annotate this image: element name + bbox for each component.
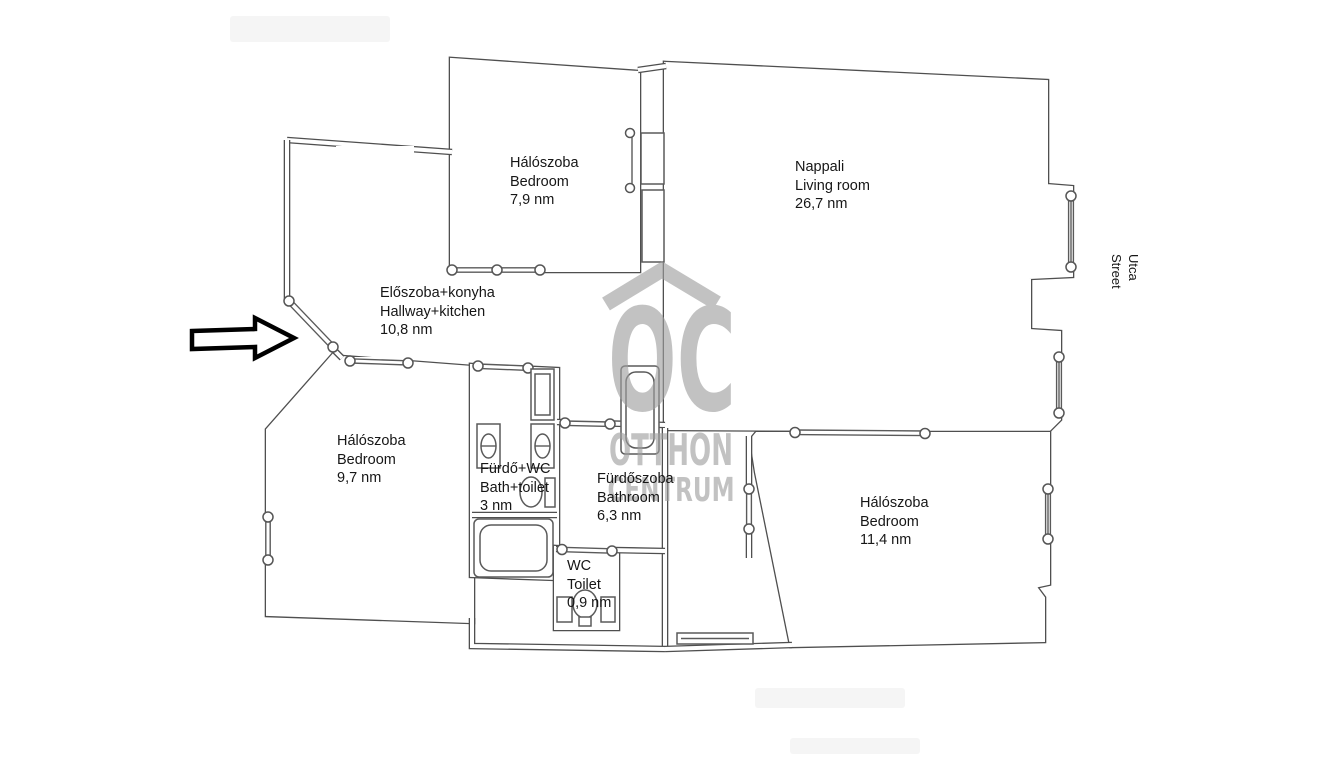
room-area: 7,9 nm xyxy=(510,191,579,210)
street-label-en: Street xyxy=(1108,254,1125,316)
room-name-en: Bedroom xyxy=(337,451,406,470)
bathtub-small xyxy=(474,519,553,577)
room-name-en: Living room xyxy=(795,177,870,196)
room-area: 26,7 nm xyxy=(795,195,870,214)
living-bedroom-opening xyxy=(790,428,930,439)
shaft-closets xyxy=(641,133,664,262)
room-label-bedroom-right: Hálószoba Bedroom 11,4 nm xyxy=(860,494,929,550)
entrance-door xyxy=(284,296,338,352)
room-name-en: Toilet xyxy=(567,576,611,595)
vestibule-door xyxy=(744,484,754,534)
room-name-en: Bedroom xyxy=(510,173,579,192)
street-label: Utca Street xyxy=(1104,254,1142,316)
room-name-hu: Hálószoba xyxy=(860,494,929,513)
room-name-hu: Előszoba+konyha xyxy=(380,284,495,303)
room-name-en: Bath+toilet xyxy=(480,479,551,498)
street-label-hu: Utca xyxy=(1125,254,1142,316)
bedroom-right-window xyxy=(1043,484,1053,544)
room-name-en: Bathroom xyxy=(597,489,674,508)
room-label-bath-toilet: Fürdő+WC Bath+toilet 3 nm xyxy=(480,460,551,516)
room-label-bathroom: Fürdőszoba Bathroom 6,3 nm xyxy=(597,470,674,526)
room-area: 0,9 nm xyxy=(567,594,611,613)
room-label-wc: WC Toilet 0,9 nm xyxy=(567,557,611,613)
floorplan-drawing: .wo{fill:none;stroke:#4f4f4f;stroke-widt… xyxy=(0,0,1344,768)
scan-erasure xyxy=(336,146,414,156)
room-name-hu: WC xyxy=(567,557,611,576)
room-label-hallway-kitchen: Előszoba+konyha Hallway+kitchen 10,8 nm xyxy=(380,284,495,340)
room-label-bedroom-top: Hálószoba Bedroom 7,9 nm xyxy=(510,154,579,210)
watermark-line1: OTTHON xyxy=(609,425,733,476)
scan-smudge xyxy=(755,688,905,708)
room-area: 10,8 nm xyxy=(380,321,495,340)
watermark-initials: OC xyxy=(608,279,736,444)
room-name-en: Hallway+kitchen xyxy=(380,303,495,322)
bedroom-top-window xyxy=(447,265,545,275)
room-area: 9,7 nm xyxy=(337,469,406,488)
room-label-living-room: Nappali Living room 26,7 nm xyxy=(795,158,870,214)
room-area: 11,4 nm xyxy=(860,531,929,550)
room-name-hu: Hálószoba xyxy=(510,154,579,173)
room-name-hu: Fürdő+WC xyxy=(480,460,551,479)
scan-smudge xyxy=(790,738,920,754)
room-label-bedroom-left: Hálószoba Bedroom 9,7 nm xyxy=(337,432,406,488)
room-area: 3 nm xyxy=(480,497,551,516)
scan-smudge xyxy=(230,16,390,42)
room-area: 6,3 nm xyxy=(597,507,674,526)
room-name-hu: Fürdőszoba xyxy=(597,470,674,489)
room-name-hu: Nappali xyxy=(795,158,870,177)
floorplan-page: .wo{fill:none;stroke:#4f4f4f;stroke-widt… xyxy=(0,0,1344,768)
entrance-arrow-icon xyxy=(192,318,294,358)
room-name-hu: Hálószoba xyxy=(337,432,406,451)
room-name-en: Bedroom xyxy=(860,513,929,532)
bedroom-left-window xyxy=(263,512,273,565)
living-room-window-upper xyxy=(1066,191,1076,272)
radiator xyxy=(677,633,753,644)
bathroom-door xyxy=(560,418,615,429)
scan-erasure xyxy=(846,80,956,91)
living-room-window-lower xyxy=(1054,352,1064,418)
bath-cabinet xyxy=(531,369,554,420)
